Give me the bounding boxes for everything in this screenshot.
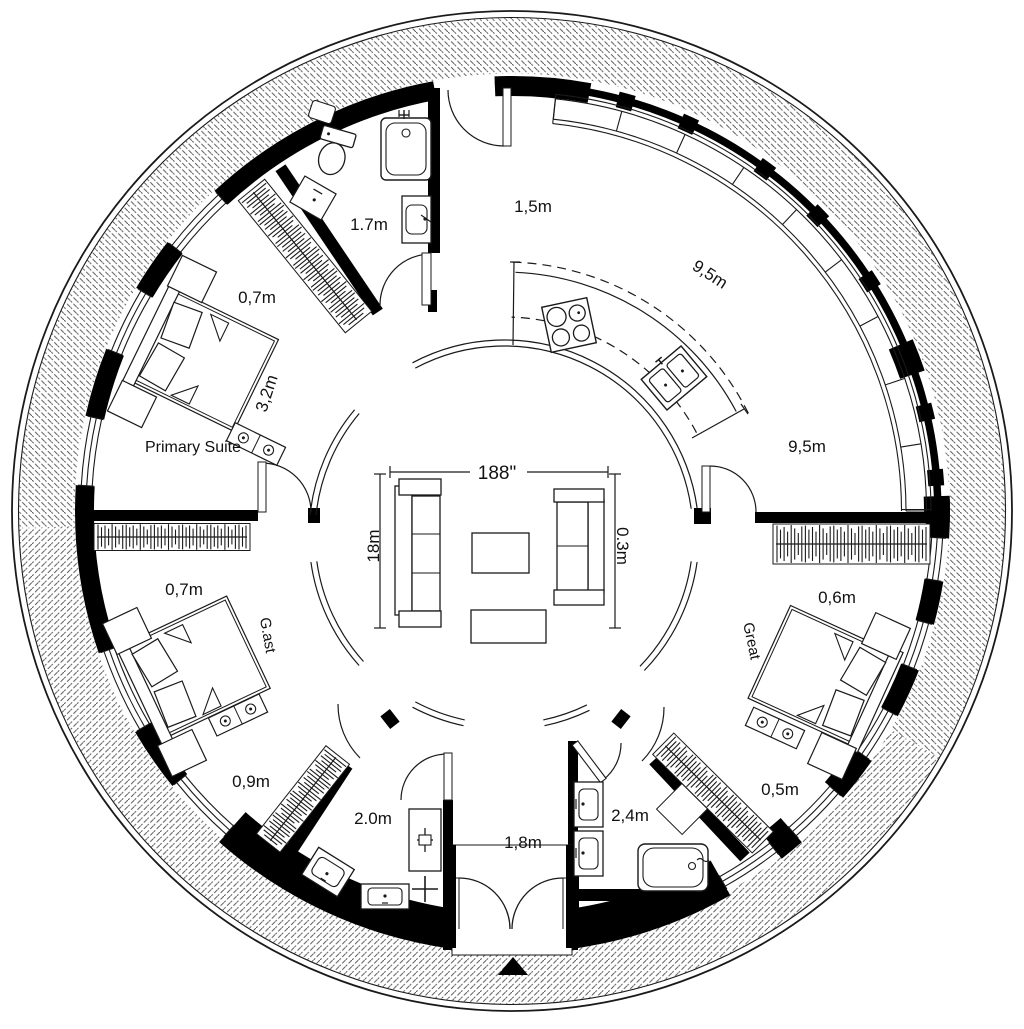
svg-text:2.0m: 2.0m: [354, 809, 392, 828]
svg-text:1.7m: 1.7m: [350, 215, 388, 234]
svg-text:1,8m: 1,8m: [504, 833, 542, 852]
svg-text:0,7m: 0,7m: [165, 580, 203, 599]
svg-text:2,4m: 2,4m: [611, 806, 649, 825]
svg-text:188": 188": [478, 463, 516, 484]
svg-text:0,7m: 0,7m: [238, 288, 276, 307]
svg-text:0,5m: 0,5m: [761, 780, 799, 799]
svg-text:0.3m: 0.3m: [613, 527, 632, 565]
svg-text:Primary Suite: Primary Suite: [145, 439, 241, 456]
svg-text:18m: 18m: [364, 529, 383, 562]
svg-text:0,6m: 0,6m: [818, 588, 856, 607]
svg-text:9,5m: 9,5m: [788, 437, 826, 456]
svg-text:0,9m: 0,9m: [232, 772, 270, 791]
svg-text:1,5m: 1,5m: [514, 197, 552, 216]
